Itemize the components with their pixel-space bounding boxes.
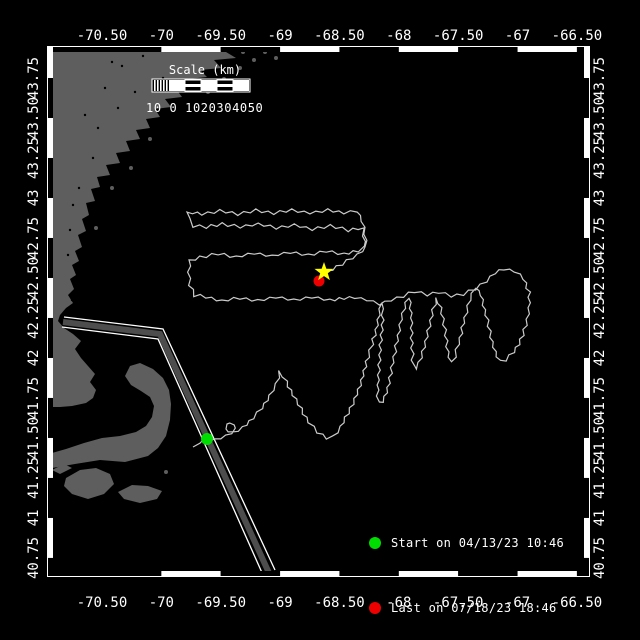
lat-tick-label-right: 41.50 [592, 417, 608, 459]
land-speckle [142, 55, 144, 57]
scale-bar-numbers: 10 0 1020304050 [146, 101, 263, 115]
lat-tick-label-right: 43.25 [592, 137, 608, 179]
lon-tick-label-bottom: -70 [149, 595, 174, 611]
lon-tick-label-top: -70 [149, 28, 174, 44]
lon-tick-label-bottom: -69 [267, 595, 292, 611]
lat-tick-label-right: 41.75 [592, 377, 608, 419]
land-speckle [78, 187, 80, 189]
land-speckle [92, 157, 94, 159]
coastal-islet [94, 226, 98, 230]
start-position-marker[interactable] [201, 433, 213, 445]
lat-tick-label-left: 41 [26, 510, 42, 527]
lat-tick-label-left: 41.50 [26, 417, 42, 459]
legend: Start on 04/13/23 10:46 Last on 07/18/23… [365, 498, 587, 640]
start-dot-icon [365, 536, 385, 550]
land-speckle [91, 344, 93, 346]
scale-bar-hatch-line [157, 80, 159, 91]
land-speckle [86, 271, 88, 273]
scale-bar-solid-seg [169, 80, 185, 91]
last-position-marker[interactable] [314, 276, 325, 287]
lat-tick-label-left: 41.75 [26, 377, 42, 419]
lat-tick-label-left: 43.25 [26, 137, 42, 179]
scale-bar-solid-seg [233, 80, 249, 91]
coastal-islet [110, 186, 114, 190]
lon-tick-label-top: -69.50 [195, 28, 246, 44]
legend-row-last: Last on 07/18/23 18:46 [365, 601, 587, 615]
lat-tick-label-right: 40.75 [592, 537, 608, 579]
lat-tick-label-left: 40.75 [26, 537, 42, 579]
scale-bar-hatch-line [163, 80, 165, 91]
scale-bar [152, 79, 250, 92]
lat-tick-label-right: 41.25 [592, 457, 608, 499]
lat-tick-label-left: 43.75 [26, 57, 42, 99]
land-speckle [134, 91, 136, 93]
lat-tick-label-left: 43.50 [26, 97, 42, 139]
lat-tick-label-right: 43 [592, 190, 608, 207]
land-speckle [71, 299, 73, 301]
scale-bar-solid-seg [201, 80, 217, 91]
lat-tick-label-right: 42.25 [592, 297, 608, 339]
lat-tick-label-right: 42 [592, 350, 608, 367]
lon-tick-label-bottom: -69.50 [195, 595, 246, 611]
legend-start-label: Start on 04/13/23 10:46 [391, 536, 564, 550]
glider-track-map-window: -70.50-70.50-70-70-69.50-69.50-69-69-68.… [0, 0, 640, 640]
coastal-islet [148, 137, 152, 141]
lon-tick-label-bottom: -70.50 [77, 595, 128, 611]
lon-tick-label-bottom: -68.50 [314, 595, 365, 611]
lat-tick-label-left: 43 [26, 190, 42, 207]
coastal-islet [274, 56, 278, 60]
land-speckle [84, 114, 86, 116]
coastal-islet [58, 468, 62, 472]
lat-tick-label-left: 42.25 [26, 297, 42, 339]
lat-tick-label-left: 42.75 [26, 217, 42, 259]
lat-tick-label-left: 41.25 [26, 457, 42, 499]
scale-bar-hatch-line [154, 80, 156, 91]
scale-bar-hatch-line [160, 80, 162, 91]
lat-tick-label-left: 42.50 [26, 257, 42, 299]
lat-tick-label-right: 43.75 [592, 57, 608, 99]
scale-bar-stripe-seg [217, 84, 233, 87]
lon-tick-label-top: -69 [267, 28, 292, 44]
coastal-islet [129, 166, 133, 170]
coastal-islet [164, 470, 168, 474]
land-speckle [111, 61, 113, 63]
last-dot-icon [365, 601, 385, 615]
scale-bar-title: Scale (km) [160, 63, 250, 77]
land-speckle [72, 204, 74, 206]
land-speckle [104, 87, 106, 89]
lat-tick-label-right: 41 [592, 510, 608, 527]
coastal-islet [252, 58, 256, 62]
lat-tick-label-left: 42 [26, 350, 42, 367]
scale-bar-hatch-line [166, 80, 168, 91]
legend-row-start: Start on 04/13/23 10:46 [365, 536, 587, 550]
land-speckle [97, 127, 99, 129]
lat-tick-label-right: 42.75 [592, 217, 608, 259]
lon-tick-label-top: -68 [386, 28, 411, 44]
land-speckle [121, 65, 123, 67]
land-speckle [117, 107, 119, 109]
lat-tick-label-right: 42.50 [592, 257, 608, 299]
lat-tick-label-right: 43.50 [592, 97, 608, 139]
lon-tick-label-top: -70.50 [77, 28, 128, 44]
lon-tick-label-top: -67 [505, 28, 530, 44]
scale-bar-stripe-seg [185, 84, 201, 87]
land-speckle [69, 229, 71, 231]
land-speckle [67, 254, 69, 256]
legend-last-label: Last on 07/18/23 18:46 [391, 601, 557, 615]
lon-tick-label-top: -66.50 [552, 28, 603, 44]
lon-tick-label-top: -67.50 [433, 28, 484, 44]
lon-tick-label-top: -68.50 [314, 28, 365, 44]
